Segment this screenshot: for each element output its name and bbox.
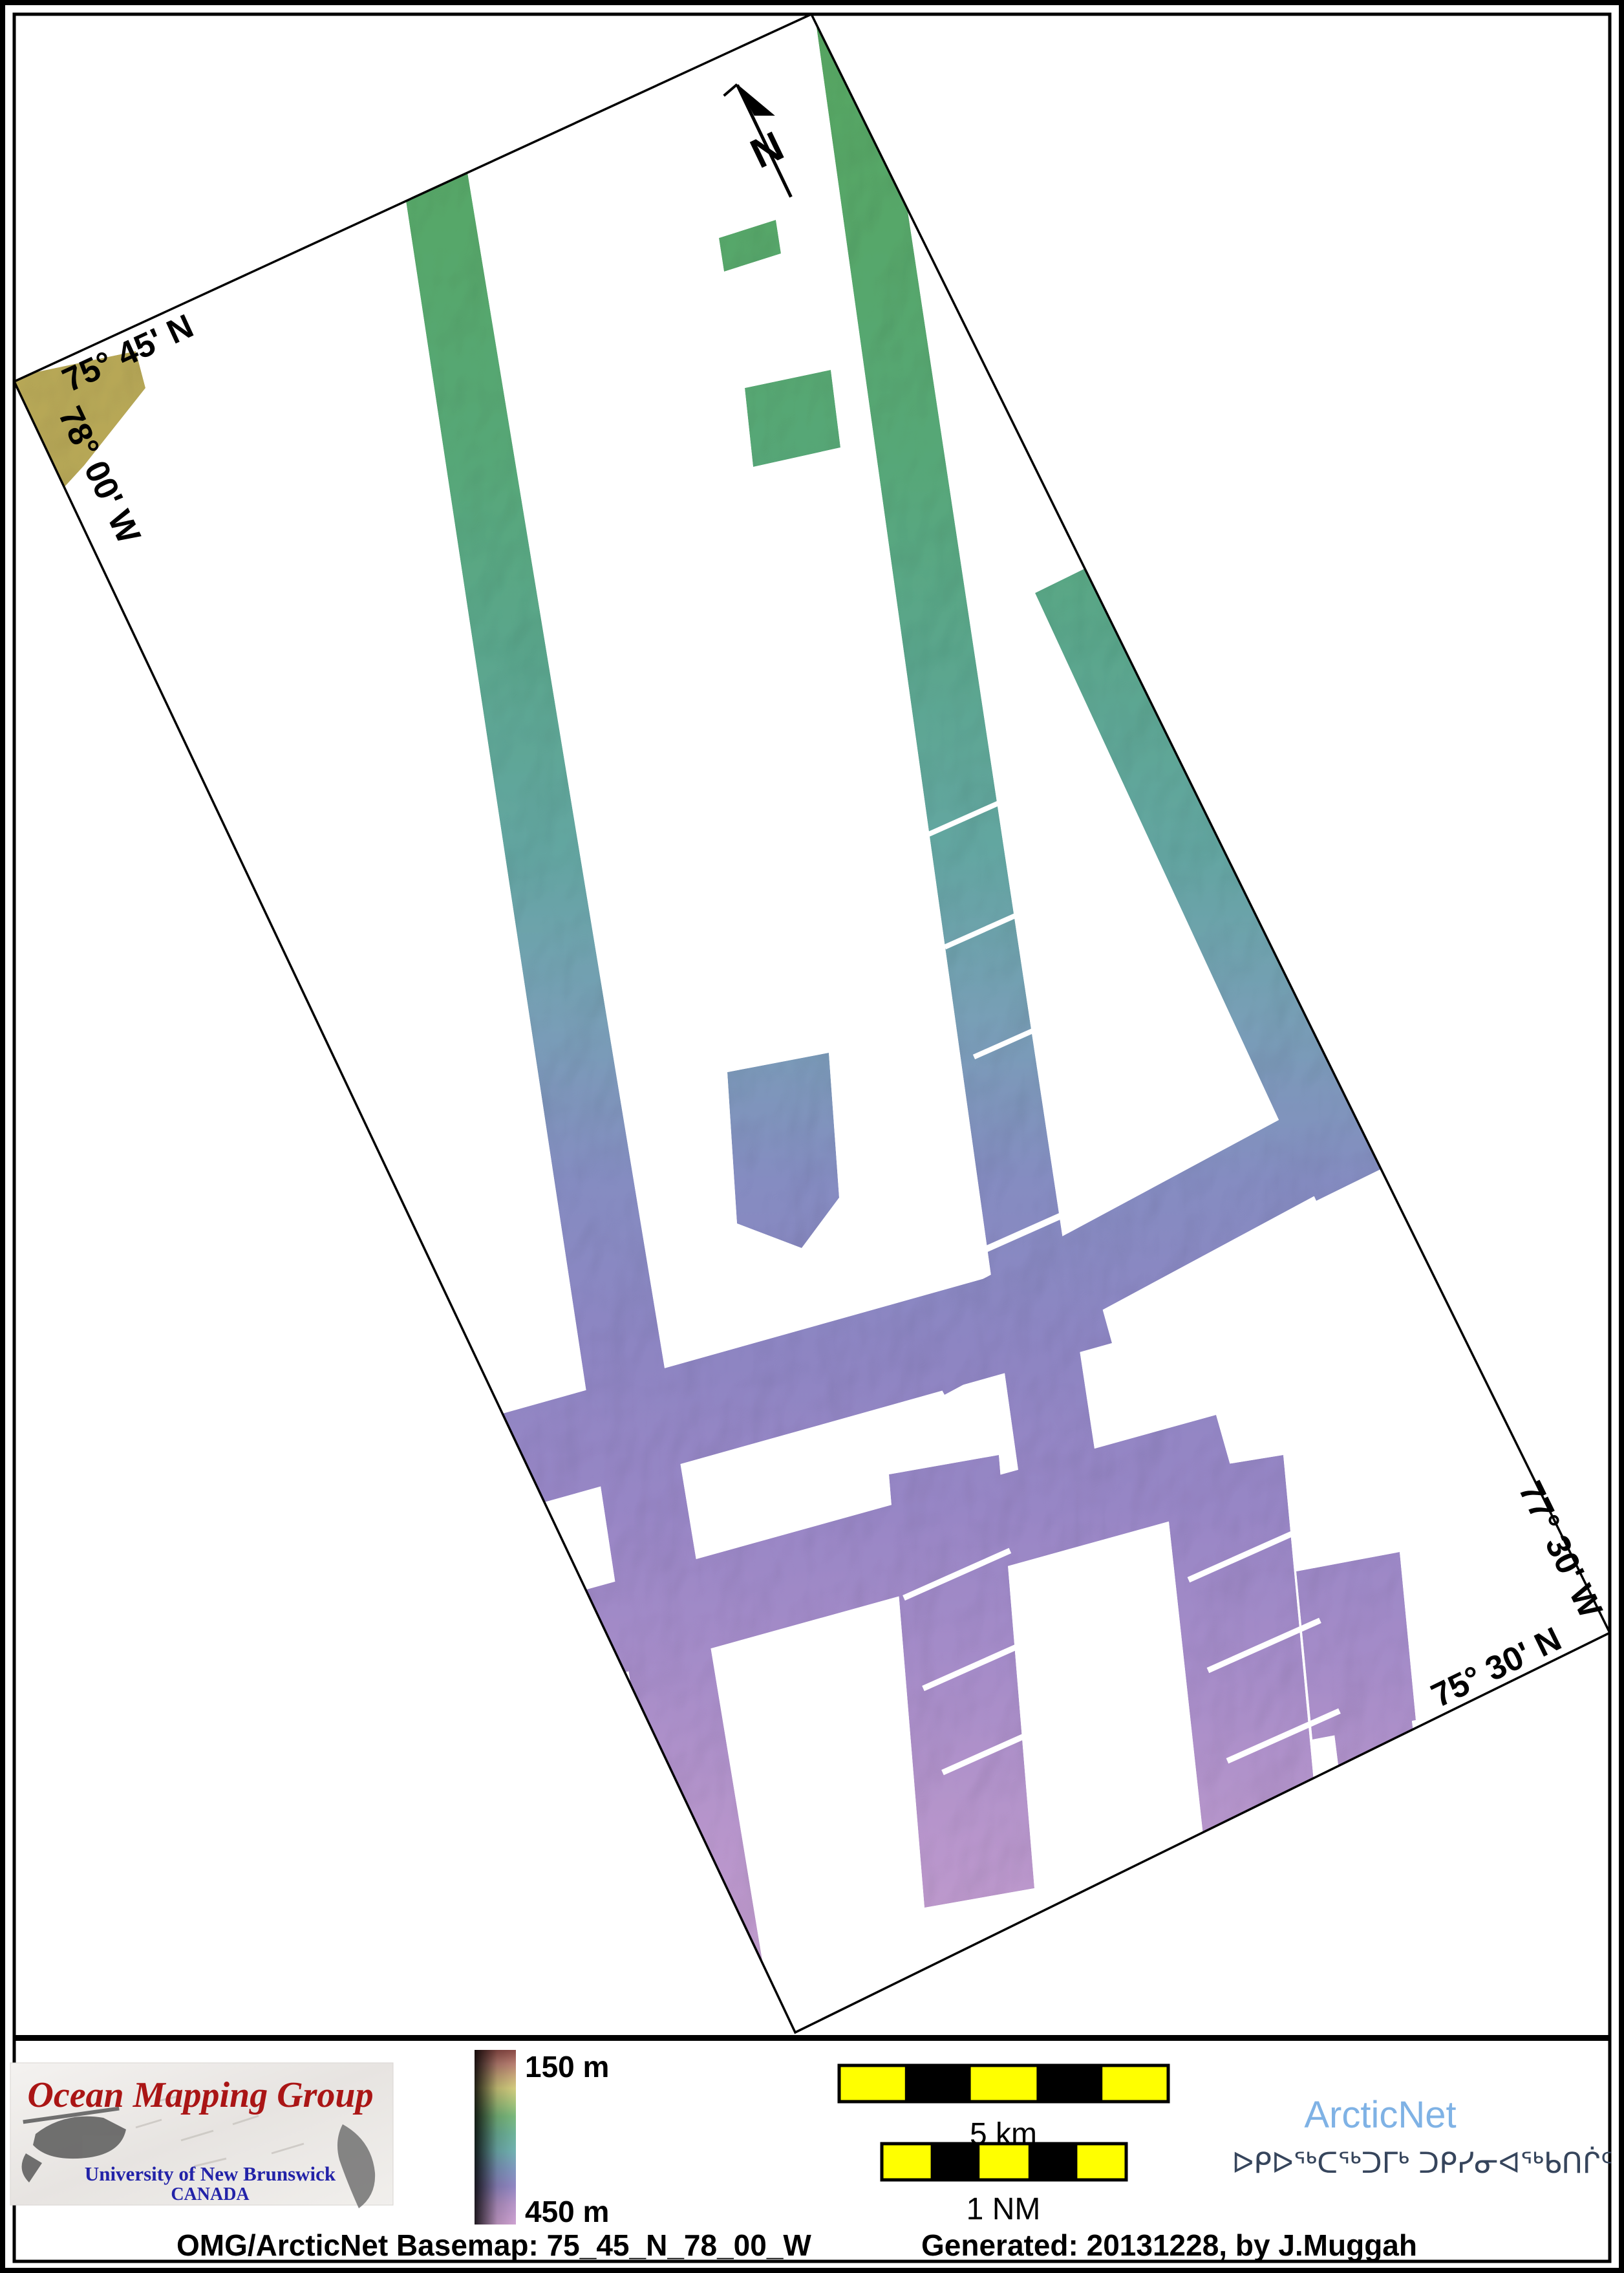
omg-country: CANADA [171,2184,250,2204]
scalebar-km: 5 km [839,2065,1168,2151]
caption: OMG/ArcticNet Basemap: 75_45_N_78_00_W G… [176,2228,1417,2262]
swath-patch-north-1 [719,220,781,272]
caption-basemap: OMG/ArcticNet Basemap: 75_45_N_78_00_W [176,2228,811,2262]
swath-patch-se-2 [1332,1701,1422,1817]
label-lon-right: 77° 30' W [1511,1476,1609,1624]
omg-logo: Ocean Mapping Group University of New Br… [10,2063,393,2208]
panel-divider-line [16,2035,1608,2041]
scalebar-nm: 1 NM [882,2144,1126,2226]
bathymetry-swaths [6,10,1422,2011]
depth-legend-bottom: 450 m [525,2195,609,2228]
north-arrow-tick [722,85,739,96]
map-area: 75° 45' N 78° 00' W 77° 30' W 75° 30' N … [6,10,1610,2032]
swath-patch-north-2 [745,370,840,467]
omg-title: Ocean Mapping Group [27,2075,373,2115]
swath-line-west [401,153,771,2011]
scale-bars: 5 km 1 NM [839,2065,1168,2226]
bottom-panel: Ocean Mapping Group University of New Br… [10,2050,1613,2262]
basemap-canvas: 75° 45' N 78° 00' W 77° 30' W 75° 30' N … [0,0,1624,2273]
omg-university: University of New Brunswick [85,2162,336,2185]
label-lat-bottom: 75° 30' N [1426,1620,1567,1715]
swath-patch-centre [727,1053,839,1248]
caption-generated: Generated: 20131228, by J.Muggah [921,2228,1417,2262]
depth-legend-top: 150 m [525,2050,609,2084]
arcticnet-inuktitut: ᐅᑭᐅᖅᑕᖅᑐᒥᒃ ᑐᑭᓯᓂᐊᖅᑲᑎᒌᑦ [1232,2146,1612,2180]
scalebar-nm-label: 1 NM [967,2192,1041,2226]
north-arrow-letter: N [743,122,791,177]
depth-legend: 150 m 450 m [475,2050,609,2228]
north-arrow-head [737,75,775,125]
basemap-sheet: 75° 45' N 78° 00' W 77° 30' W 75° 30' N … [0,0,1624,2273]
depth-legend-shading [475,2050,516,2225]
arcticnet-logo: ArcticNet ᐅᑭᐅᖅᑕᖅᑐᒥᒃ ᑐᑭᓯᓂᐊᖅᑲᑎᒌᑦ [1232,2094,1612,2180]
arcticnet-name: ArcticNet [1304,2094,1456,2136]
north-arrow: N [721,75,809,204]
